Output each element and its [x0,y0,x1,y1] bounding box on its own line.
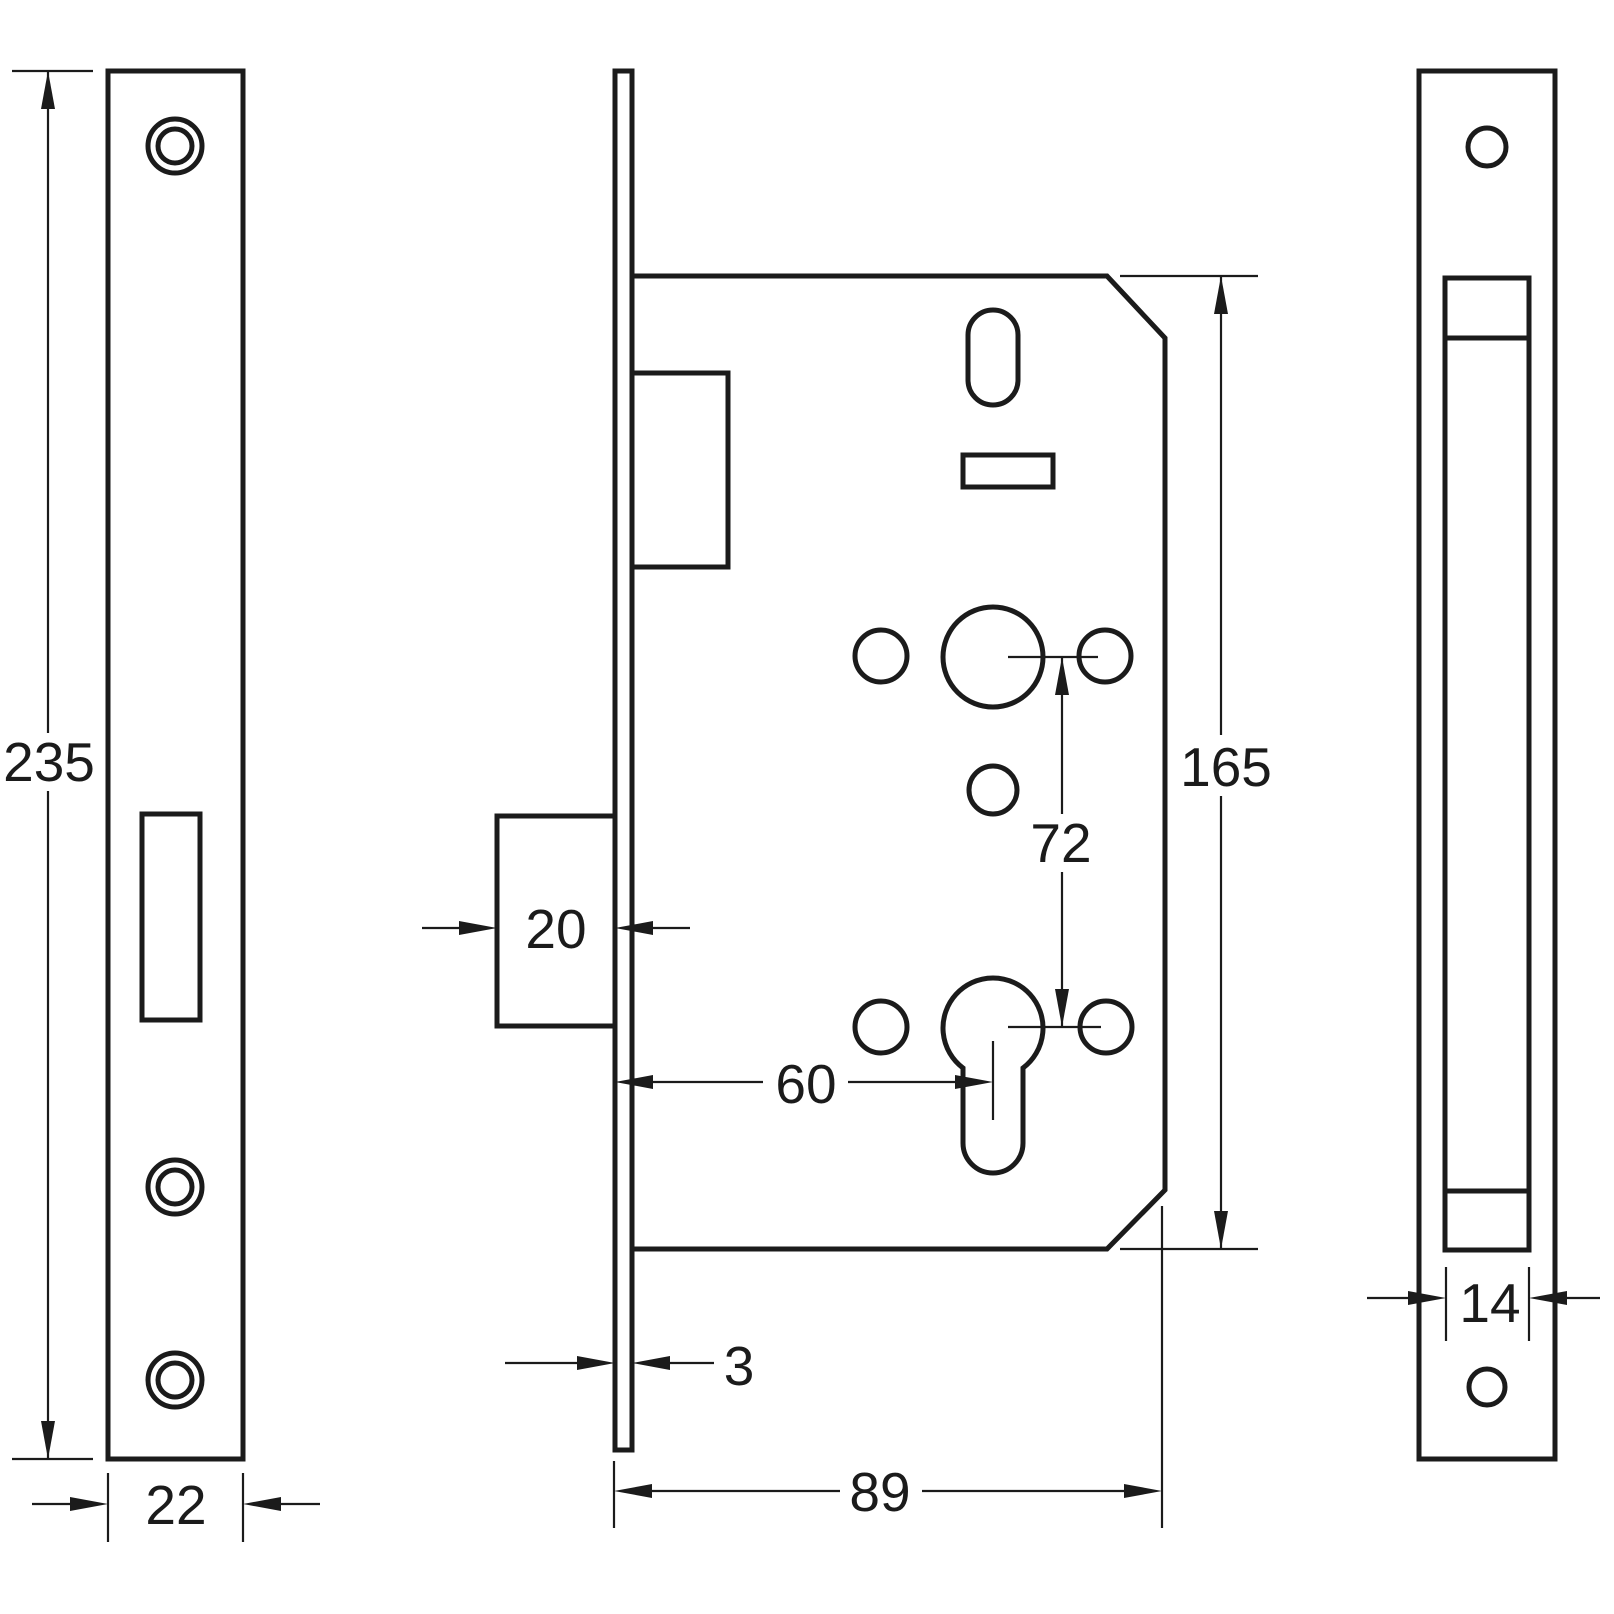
dim-faceplate-height: 235 [3,71,95,1459]
screw-hole-top [1468,128,1506,166]
dim-label-22: 22 [145,1474,206,1536]
dim-case-height: 165 [1120,276,1272,1249]
rectangular-aperture [963,455,1053,487]
arrowhead-down [1214,1211,1228,1249]
fixing-hole-middle [969,766,1017,814]
arrowhead-left [632,1356,670,1370]
technical-drawing-canvas: 235 22 [0,0,1614,1614]
faceplate-front-view [108,71,243,1459]
case-channel [1445,278,1529,1250]
latch-box [632,373,728,567]
dim-bolt-throw: 20 [422,898,690,960]
dim-case-depth: 89 [614,1206,1162,1528]
dim-label-3: 3 [724,1335,755,1397]
dim-label-60: 60 [775,1053,836,1115]
dim-label-72: 72 [1030,812,1091,874]
arrowhead-left [1529,1291,1567,1305]
lock-case-side-view [497,71,1165,1450]
arrowhead-right [955,1075,993,1089]
faceplate-front-outline [108,71,243,1459]
screw-hole-bottom-inner [158,1363,192,1397]
slotted-hole [968,310,1018,405]
screw-hole-middle-inner [158,1170,192,1204]
fixing-hole-bottom-left [855,1001,907,1053]
screw-hole-bottom [1469,1369,1505,1405]
dim-backset: 60 [615,1053,993,1115]
arrowhead-left [243,1497,281,1511]
dim-label-89: 89 [849,1461,910,1523]
dim-label-14: 14 [1459,1272,1520,1334]
arrowhead-right [1408,1291,1446,1305]
arrowhead-right [577,1356,615,1370]
deadbolt-aperture [142,814,200,1020]
dim-label-165: 165 [1180,736,1272,798]
mortice-lock-drawing: 235 22 [0,0,1614,1614]
arrowhead-down [1055,989,1069,1027]
arrowhead-right [1124,1484,1162,1498]
faceplate-strip [615,71,632,1450]
dim-label-20: 20 [525,898,586,960]
fixing-hole-top-left [855,630,907,682]
faceplate-edge-view [1419,71,1555,1459]
lock-case-outline [632,276,1165,1249]
arrowhead-up [41,71,55,109]
arrowhead-left [614,1484,652,1498]
arrowhead-up [1055,657,1069,695]
dim-case-thickness: 14 [1367,1267,1600,1341]
arrowhead-right [459,921,497,935]
arrowhead-right [70,1497,108,1511]
arrowhead-down [41,1421,55,1459]
dim-label-235: 235 [3,731,95,793]
screw-hole-top-inner [158,129,192,163]
arrowhead-up [1214,276,1228,314]
dim-centres: 72 [1030,657,1091,1027]
dim-faceplate-width: 22 [32,1473,320,1542]
